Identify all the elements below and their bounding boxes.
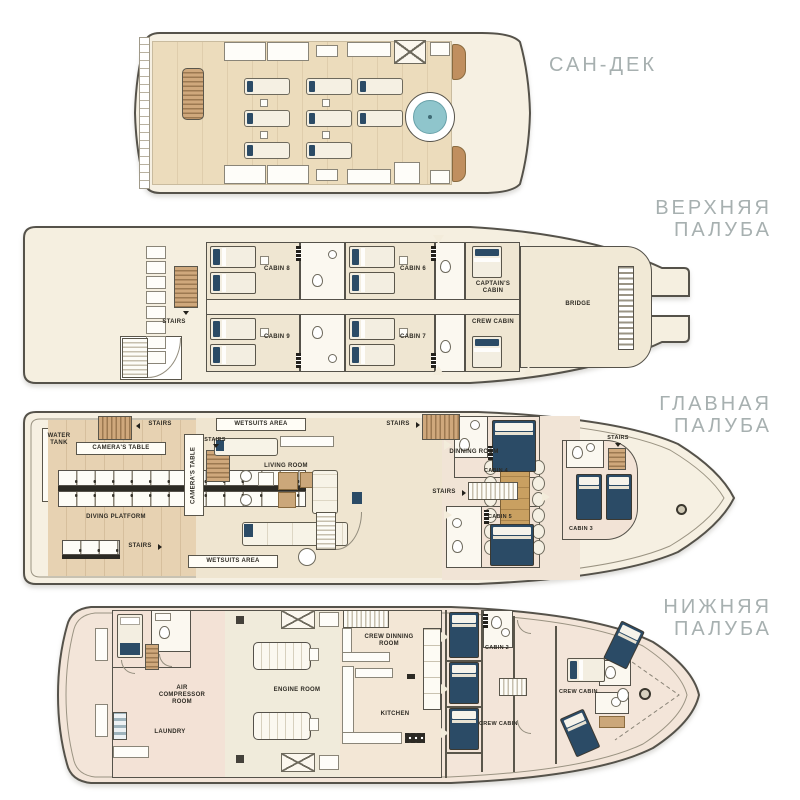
bench [430, 42, 450, 56]
bench [224, 165, 266, 184]
table-crossed [394, 40, 426, 64]
stairs-label: STAIRS [122, 543, 158, 550]
stairs-label: STAIRS [380, 421, 416, 428]
stairs-arrow-icon [416, 422, 420, 428]
engine-gearbox [309, 718, 319, 731]
dinette-table [342, 652, 390, 662]
stairs-wood [145, 644, 159, 670]
wetsuits-area-label: WETSUITS AREA [216, 418, 306, 431]
round-table [298, 548, 316, 566]
cameras-table-label: CAMERA'S TABLE [76, 442, 166, 455]
stairs-arrow-icon [136, 423, 140, 429]
tank-rack-rail [62, 555, 120, 559]
bed [567, 658, 605, 682]
dinning-room-label: DINNING ROOM [442, 449, 506, 456]
crew-cabin-label: CREW CABIN [559, 689, 597, 696]
bench [347, 169, 391, 184]
stairs-label: STAIRS [148, 319, 200, 326]
bridge-label: BRIDGE [550, 301, 606, 308]
air-compressor-label: AIR COMPRESSOR ROOM [155, 685, 209, 706]
cabin7-label: CABIN 7 [390, 334, 436, 341]
title-sun-deck: САН-ДЕК [549, 54, 657, 76]
bench [267, 42, 309, 61]
bed [349, 344, 395, 366]
wetsuits-area-label: WETSUITS AREA [188, 555, 278, 568]
appliance [352, 492, 362, 504]
sofa-cushion [244, 524, 253, 537]
equipment-box [319, 755, 339, 770]
nightstand [399, 256, 408, 265]
curved-seat [452, 146, 466, 182]
bed [449, 662, 479, 704]
side-table [260, 131, 268, 139]
toilet-icon [440, 340, 451, 353]
stairs-arrow-icon [158, 544, 162, 550]
dive-tank-rack [62, 540, 120, 555]
nightstand [260, 256, 269, 265]
stairs-label: STAIRS [426, 489, 462, 496]
diving-platform-label: DIVING PLATFORM [64, 514, 168, 521]
sun-lounger [357, 110, 403, 127]
captains-cabin-label: CAPTAIN'S CABIN [466, 281, 520, 295]
kitchen-label: KITCHEN [373, 711, 417, 718]
cabin3-label: CABIN 3 [563, 526, 599, 533]
wardrobe [431, 246, 436, 261]
stairs-wood [98, 416, 132, 440]
bed [210, 246, 256, 268]
engine-room-label: ENGINE ROOM [265, 687, 329, 694]
toilet-icon [572, 446, 583, 459]
wood-step [599, 716, 625, 728]
cabin5-label: CABIN 5 [480, 514, 520, 521]
engine [253, 712, 311, 740]
toilet-icon [440, 260, 451, 273]
cabin6-label: CABIN 6 [390, 266, 436, 273]
bench [267, 165, 309, 184]
side-table [260, 99, 268, 107]
dive-tank-rack [58, 491, 306, 507]
sink-icon [452, 518, 462, 528]
cabin8-label: CABIN 8 [254, 266, 300, 273]
deck-locker [146, 291, 166, 304]
cameras-table-label: CAMERA'S TABLE [184, 434, 204, 516]
armchair [312, 470, 338, 514]
pump-unit-core [236, 616, 244, 624]
pump-unit-core [236, 755, 244, 763]
stern-platform [139, 37, 150, 189]
toilet-icon [159, 626, 170, 639]
title-upper-deck: ВЕРХНЯЯ ПАЛУБА [632, 197, 772, 241]
side-table [322, 131, 330, 139]
sun-lounger [244, 110, 290, 127]
bench [394, 162, 420, 184]
floor-hatch [281, 610, 315, 629]
wardrobe [431, 353, 436, 368]
kitchen-counter [355, 668, 393, 678]
dining-chair [532, 508, 545, 523]
double-bed [492, 420, 536, 472]
cabin2-label: CABIN 2 [481, 645, 513, 652]
side-table [322, 99, 330, 107]
deck-locker [146, 246, 166, 259]
deck-locker [146, 276, 166, 289]
stove [405, 733, 425, 743]
bow-fitting [617, 688, 629, 702]
sink-icon [328, 354, 337, 363]
laundry-counter [113, 746, 149, 758]
sideboard [280, 436, 334, 447]
bench [316, 169, 338, 181]
upper-deck-plan: STAIRS CABIN 8 CABIN 6 CABIN 9 CABIN 7 C… [20, 222, 696, 388]
bed [472, 336, 502, 368]
platform-bench [95, 628, 108, 661]
sun-lounger [357, 78, 403, 95]
anchor-winch [676, 504, 687, 515]
bed [210, 344, 256, 366]
title-main-deck: ГЛАВНАЯ ПАЛУБА [632, 393, 772, 437]
bed [472, 246, 502, 278]
bathroom [300, 242, 345, 300]
jacuzzi [405, 92, 455, 142]
wardrobe [296, 246, 301, 261]
stairs [343, 610, 389, 628]
bed [210, 318, 256, 340]
bed [349, 246, 395, 268]
platform-bench [95, 704, 108, 737]
stairs-arrow-icon [615, 443, 621, 447]
stairs-arrow-icon [213, 444, 219, 448]
bench [430, 170, 450, 184]
crew-cabin-label: CREW CABIN [466, 319, 520, 326]
cabin4-label: CABIN 4 [476, 468, 516, 475]
bed [210, 272, 256, 294]
wardrobe [483, 614, 488, 628]
stairs-label: STAIRS [200, 437, 230, 444]
stairs-wood [608, 448, 626, 470]
coffee-table-wood [278, 472, 298, 490]
stairs [499, 678, 527, 696]
lower-deck-plan: AIR COMPRESSOR ROOM LAUNDRY ENGINE ROOM … [55, 600, 705, 790]
washing-machines [113, 712, 127, 740]
wall [445, 752, 482, 754]
toilet-icon [605, 666, 616, 679]
sun-lounger [306, 78, 352, 95]
sink-icon [470, 420, 480, 430]
stairs-arrow-icon [462, 490, 466, 496]
bathroom [300, 314, 345, 372]
kitchen-counter [342, 732, 402, 744]
stool [240, 494, 252, 506]
deck-locker [146, 306, 166, 319]
stool [240, 470, 252, 482]
title-lower-deck: НИЖНЯЯ ПАЛУБА [632, 596, 772, 640]
crew-dinning-label: CREW DINNING ROOM [355, 634, 423, 648]
porthole [639, 688, 651, 700]
toilet-icon [491, 616, 502, 629]
bed [606, 474, 632, 520]
toilet-icon [312, 326, 323, 339]
deck-locker [146, 261, 166, 274]
water-tank-label: WATER TANK [43, 433, 75, 447]
bed [117, 614, 143, 658]
equipment-box [319, 612, 339, 627]
toilet-icon [452, 540, 463, 553]
sink-counter [155, 613, 171, 621]
bed [449, 612, 479, 658]
stairs-wood [422, 414, 460, 440]
sun-lounger [244, 78, 290, 95]
double-bed [490, 524, 534, 566]
coffee-table-wood [278, 492, 296, 508]
spiral-stairs [316, 512, 336, 550]
fridge-cabinets [423, 628, 441, 710]
wardrobe [296, 353, 301, 368]
stairs-arrow-icon [183, 311, 189, 315]
laundry-label: LAUNDRY [145, 729, 195, 736]
stairs-label: STAIRS [602, 435, 634, 442]
sun-lounger [306, 142, 352, 159]
bridge-console [618, 266, 634, 350]
wall [555, 626, 557, 764]
sun-deck-plan [130, 30, 532, 196]
living-room-label: LIVING ROOM [256, 463, 316, 470]
dining-chair [532, 476, 545, 491]
bench [316, 45, 338, 57]
sun-lounger [306, 110, 352, 127]
bed [349, 318, 395, 340]
spiral-stairs-steps [122, 338, 148, 378]
stairs-label: STAIRS [142, 421, 178, 428]
curved-seat [452, 44, 466, 80]
sink-icon [586, 443, 595, 452]
engine [253, 642, 311, 670]
sun-lounger [244, 142, 290, 159]
coffee-table [258, 472, 274, 486]
sink-icon [328, 250, 337, 259]
bathroom [435, 242, 465, 300]
floor-hatch [281, 753, 315, 772]
sun-deck-stairs [182, 68, 204, 120]
hatch-marker [407, 674, 415, 679]
crew-cabin-label: CREW CABIN [479, 721, 513, 728]
bed [349, 272, 395, 294]
engine-gearbox [309, 648, 319, 661]
bench [224, 42, 266, 61]
stairs [468, 482, 518, 500]
toilet-icon [312, 274, 323, 287]
stairs-wood [174, 266, 198, 308]
cabin9-label: CABIN 9 [254, 334, 300, 341]
bed [449, 708, 479, 750]
sink-icon [501, 628, 510, 637]
bed [576, 474, 602, 520]
bench [347, 42, 391, 57]
